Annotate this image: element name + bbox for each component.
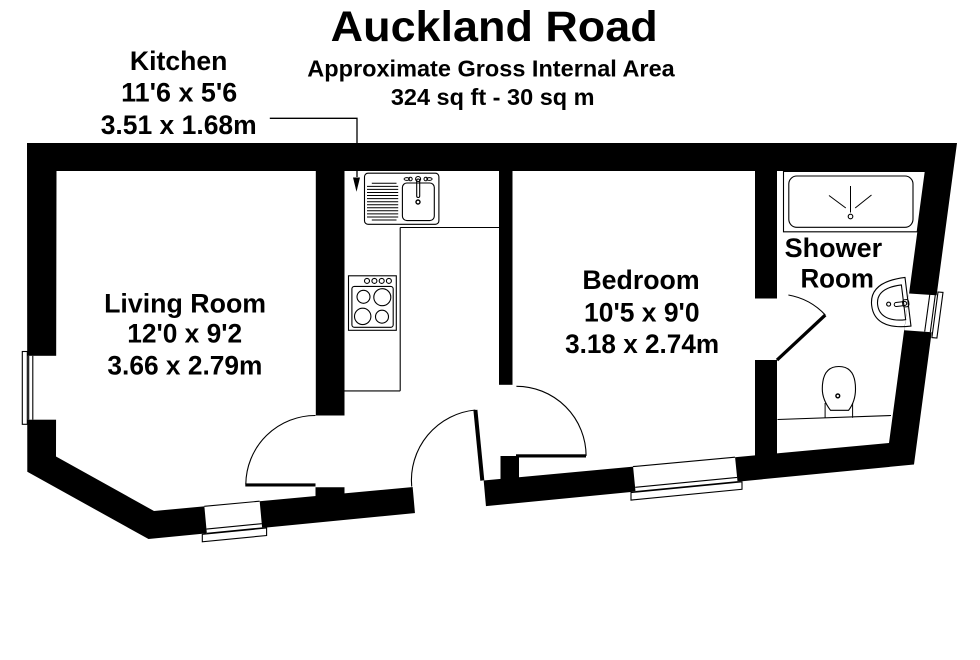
svg-text:3.18 x 2.74m: 3.18 x 2.74m — [565, 329, 719, 359]
svg-text:10'5 x 9'0: 10'5 x 9'0 — [584, 297, 700, 327]
svg-text:11'6 x 5'6: 11'6 x 5'6 — [121, 78, 237, 108]
svg-text:324 sq ft - 30 sq m: 324 sq ft - 30 sq m — [391, 84, 595, 110]
svg-text:Bedroom: Bedroom — [582, 265, 699, 295]
svg-text:12'0 x 9'2: 12'0 x 9'2 — [127, 319, 242, 349]
svg-text:3.51 x 1.68m: 3.51 x 1.68m — [101, 110, 257, 140]
svg-text:Approximate Gross Internal Are: Approximate Gross Internal Area — [307, 56, 675, 82]
svg-text:Auckland Road: Auckland Road — [331, 4, 658, 51]
svg-text:Kitchen: Kitchen — [130, 46, 228, 76]
svg-text:Shower: Shower — [785, 233, 883, 263]
svg-text:Room: Room — [800, 264, 874, 294]
svg-text:Living Room: Living Room — [104, 289, 266, 319]
svg-text:3.66 x 2.79m: 3.66 x 2.79m — [107, 351, 262, 381]
